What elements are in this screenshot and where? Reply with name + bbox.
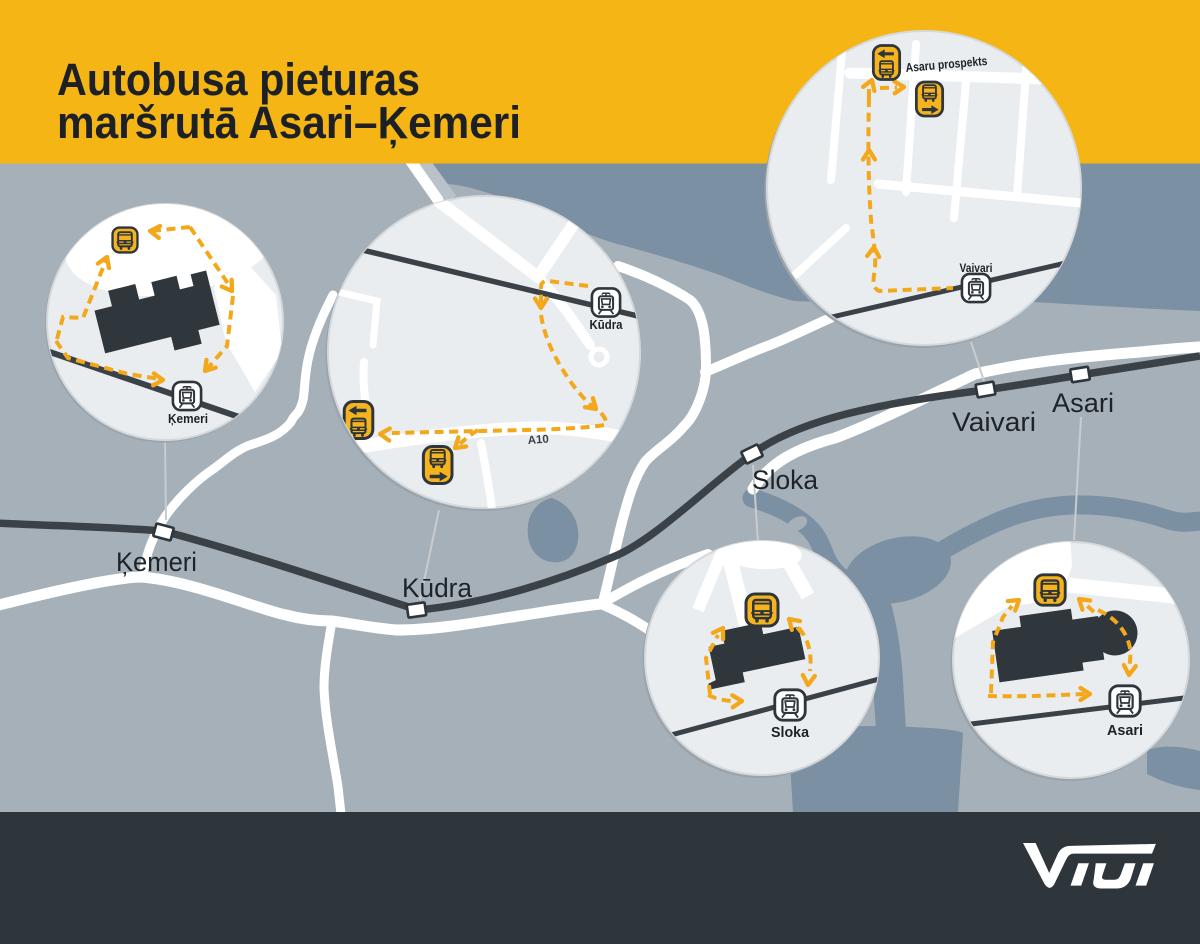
svg-text:Sloka: Sloka: [752, 465, 819, 495]
svg-text:Kūdra: Kūdra: [590, 318, 624, 332]
svg-text:Asari: Asari: [1052, 388, 1114, 418]
svg-text:Asari: Asari: [1107, 723, 1143, 739]
svg-text:Sloka: Sloka: [771, 725, 810, 741]
svg-text:A10: A10: [527, 434, 549, 447]
svg-text:Vaivari: Vaivari: [952, 407, 1036, 437]
svg-text:Vaivari: Vaivari: [960, 263, 993, 275]
svg-text:Kūdra: Kūdra: [402, 573, 473, 603]
svg-text:Ķemeri: Ķemeri: [168, 412, 208, 426]
svg-text:maršrutā Asari–Ķemeri: maršrutā Asari–Ķemeri: [57, 97, 521, 148]
svg-text:Ķemeri: Ķemeri: [116, 547, 197, 577]
